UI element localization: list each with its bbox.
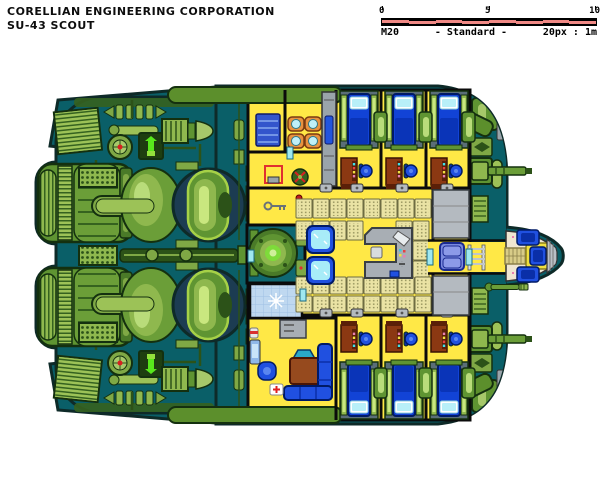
sensor-antenna	[485, 283, 528, 291]
jump-seats	[440, 243, 464, 270]
medkit-icon	[270, 384, 283, 395]
scale-ratio-label: 20px : 1m	[543, 27, 597, 38]
cargo-crate	[364, 199, 380, 218]
cargo-crate	[330, 199, 346, 218]
scale-tick-mark	[489, 6, 490, 10]
map-scale-bar: 0 5 10 M20 - Standard - 20px : 1m	[381, 6, 597, 38]
cargo-crate	[381, 277, 397, 294]
scale-map-code: M20	[381, 27, 399, 38]
deck-plan-page: CORELLIAN ENGINEERING CORPORATION SU-43 …	[0, 0, 603, 490]
scale-tick-mark	[595, 6, 596, 10]
shelf-unit	[256, 114, 280, 146]
cargo-crate	[364, 277, 380, 294]
cargo-crate	[415, 199, 431, 218]
cargo-crate	[381, 296, 397, 312]
door	[396, 184, 408, 192]
hatch-wheel	[292, 169, 308, 185]
refresher	[250, 284, 302, 318]
console-chair	[371, 247, 382, 258]
scale-bar-stripes	[381, 18, 597, 26]
counter	[280, 320, 306, 338]
manufacturer-title: CORELLIAN ENGINEERING CORPORATION	[7, 5, 275, 18]
door	[300, 289, 306, 301]
cargo-crate	[413, 221, 429, 240]
vent-grate	[79, 168, 117, 187]
door	[248, 250, 254, 262]
centerline-machinery	[79, 246, 250, 265]
door	[320, 184, 332, 192]
door	[287, 147, 293, 159]
door	[396, 309, 408, 317]
cargo-crate	[381, 199, 397, 218]
cargo-crate	[347, 277, 363, 294]
cargo-crate	[415, 296, 431, 312]
door	[351, 309, 363, 317]
door	[351, 184, 363, 192]
cargo-crate	[415, 277, 431, 294]
scale-tick-labels: 0 5 10	[381, 6, 597, 17]
cargo-crate	[330, 296, 346, 312]
cargo-crate	[347, 199, 363, 218]
wing-radiator	[54, 108, 102, 154]
ship-model-title: SU-43 SCOUT	[7, 19, 95, 32]
cargo-crate	[296, 199, 312, 218]
cargo-crate	[398, 199, 414, 218]
door	[320, 309, 332, 317]
cargo-crate	[398, 277, 414, 294]
cargo-crate	[364, 296, 380, 312]
door	[427, 249, 433, 265]
ship-deck-plan	[0, 0, 603, 490]
cargo-crate	[347, 221, 363, 240]
scale-standard-label: - Standard -	[435, 27, 507, 38]
scale-tick-mark	[382, 6, 383, 10]
cargo-crate	[313, 199, 329, 218]
door	[466, 249, 472, 265]
